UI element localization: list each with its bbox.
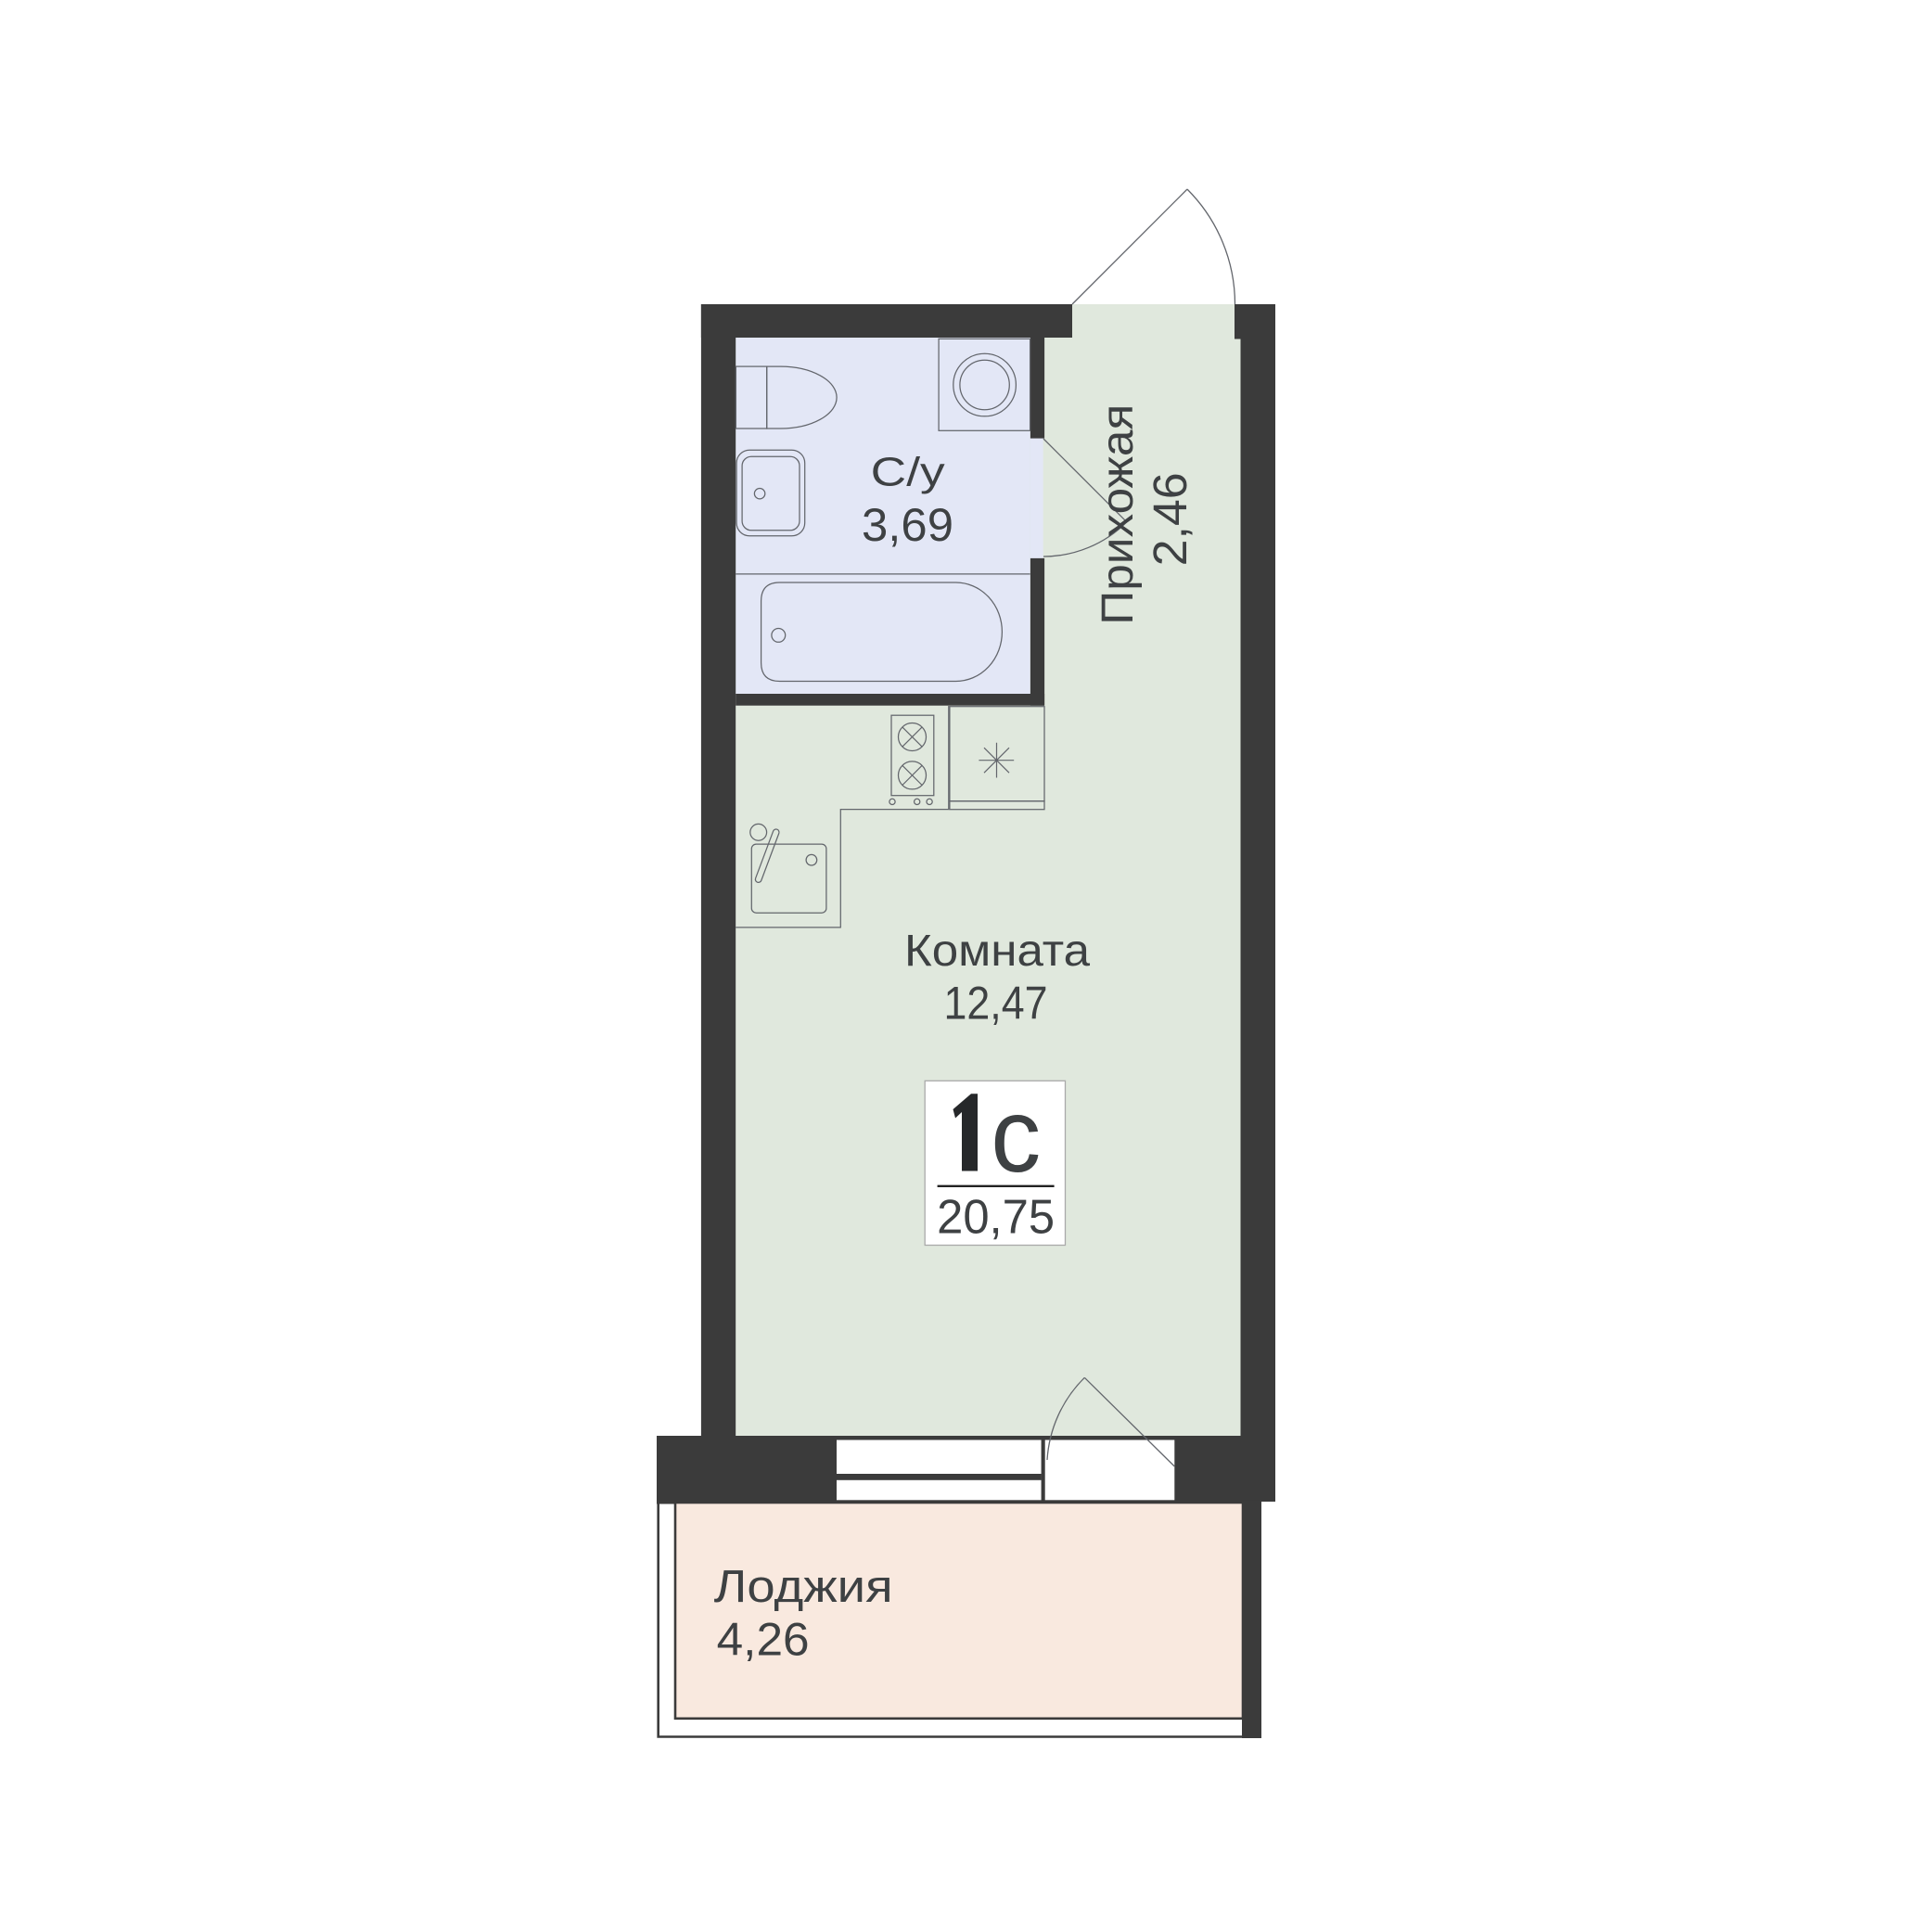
svg-text:3,69: 3,69 xyxy=(862,499,953,551)
svg-text:Прихожая: Прихожая xyxy=(1093,404,1143,625)
svg-text:20,75: 20,75 xyxy=(937,1190,1055,1244)
svg-text:Лоджия: Лоджия xyxy=(714,1562,893,1612)
svg-text:Комната: Комната xyxy=(904,926,1090,976)
svg-text:4,26: 4,26 xyxy=(717,1614,810,1666)
svg-text:С/у: С/у xyxy=(871,451,945,495)
svg-text:2,46: 2,46 xyxy=(1144,472,1196,566)
svg-text:с: с xyxy=(991,1077,1041,1194)
svg-text:12,47: 12,47 xyxy=(944,978,1048,1030)
